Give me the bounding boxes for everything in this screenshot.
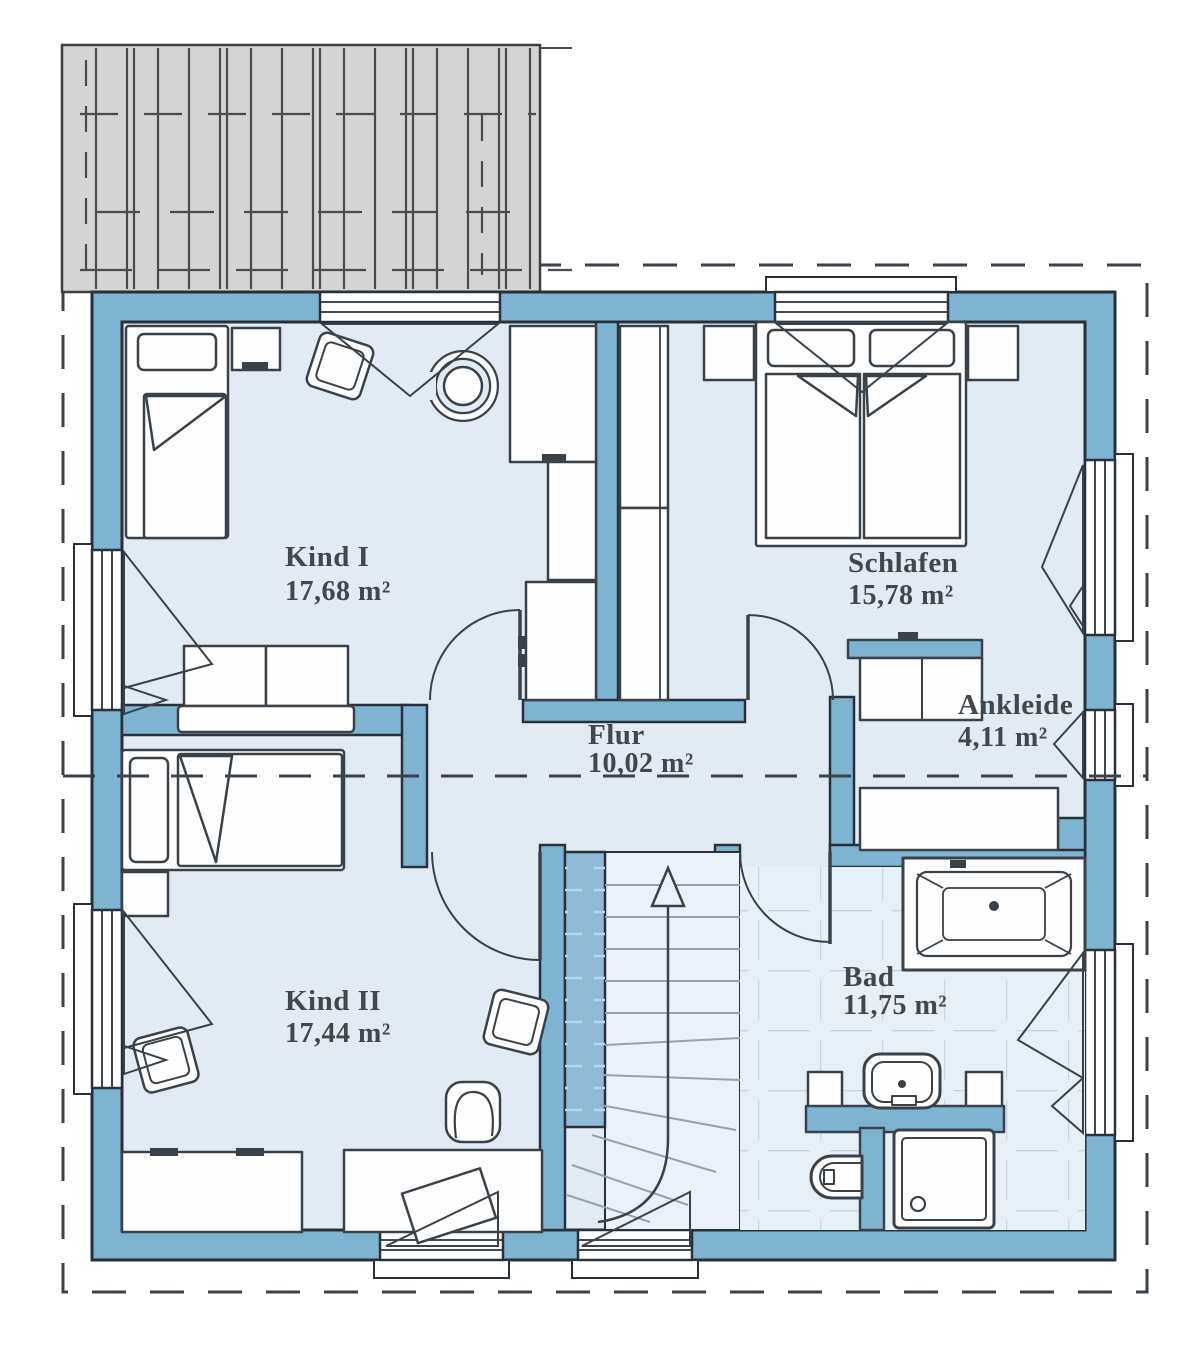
wall-stairs-left: [540, 845, 565, 1230]
room-label-kind1-area: 17,68 m²: [285, 576, 391, 607]
toilet: [811, 1156, 862, 1198]
handle: [150, 1148, 178, 1156]
wardrobe-back: [848, 640, 982, 658]
floor-cushion: [482, 988, 550, 1056]
window-kind2-bottom: [374, 1230, 509, 1278]
shower: [894, 1130, 994, 1228]
window-schlafen-right: [1085, 454, 1133, 641]
room-label-kind2-area: 17,44 m²: [285, 1018, 391, 1049]
wall-flur-ankleide: [830, 697, 854, 867]
floor-plan-page: Kind I 17,68 m² Schlafen 15,78 m² Anklei…: [0, 0, 1188, 1359]
room-label-bad-name: Bad: [843, 961, 894, 993]
room-label-ankleide-name: Ankleide: [958, 689, 1073, 721]
room-bad: [740, 852, 1085, 1230]
pillow: [138, 334, 216, 370]
vanity-counter: [806, 1106, 1004, 1132]
cabinet: [808, 1072, 842, 1108]
room-label-flur-name: Flur: [588, 719, 645, 751]
bathtub: [903, 858, 1085, 970]
wall-kind1-schlafen: [596, 322, 618, 702]
window-stairs-bottom: [572, 1230, 698, 1278]
cabinet: [526, 582, 596, 700]
room-label-schlafen-name: Schlafen: [848, 547, 958, 579]
pillow: [768, 330, 854, 366]
room-label-ankleide-area: 4,11 m²: [958, 722, 1048, 753]
floor-plan: Kind I 17,68 m² Schlafen 15,78 m² Anklei…: [0, 0, 1188, 1359]
cabinet: [548, 462, 596, 580]
sideboard: [122, 1152, 302, 1232]
room-label-kind2-name: Kind II: [285, 985, 381, 1017]
half-wall: [860, 1128, 884, 1230]
nightstand: [122, 872, 168, 916]
pillow: [870, 330, 954, 366]
sofa-back: [178, 706, 354, 732]
stair-void-hatch: [565, 852, 605, 1127]
desk: [510, 326, 596, 462]
wall-stub-ankleide: [1058, 818, 1085, 850]
room-label-schlafen-area: 15,78 m²: [848, 580, 954, 611]
nightstand: [968, 326, 1018, 380]
sofa-cushion: [184, 646, 266, 706]
terrace-canopy: [62, 45, 572, 292]
room-label-flur-area: 10,02 m²: [588, 748, 694, 779]
office-chair: [446, 1082, 500, 1142]
window-schlafen-top: [766, 277, 956, 322]
window-ankleide-right: [1085, 704, 1133, 786]
nightstand: [704, 326, 754, 380]
window-bad-right: [1085, 944, 1133, 1141]
room-label-bad-area: 11,75 m²: [843, 990, 947, 1021]
pillow: [130, 758, 168, 862]
window-kind2-left: [74, 904, 122, 1094]
sofa-cushion: [266, 646, 348, 706]
wall-flur-left: [402, 705, 427, 867]
bench: [860, 788, 1058, 850]
terrace-door: [320, 292, 500, 322]
window-kind1-left: [74, 544, 122, 716]
room-label-kind1-name: Kind I: [285, 541, 369, 573]
cabinet: [966, 1072, 1002, 1108]
handle: [242, 362, 268, 370]
handle: [236, 1148, 264, 1156]
